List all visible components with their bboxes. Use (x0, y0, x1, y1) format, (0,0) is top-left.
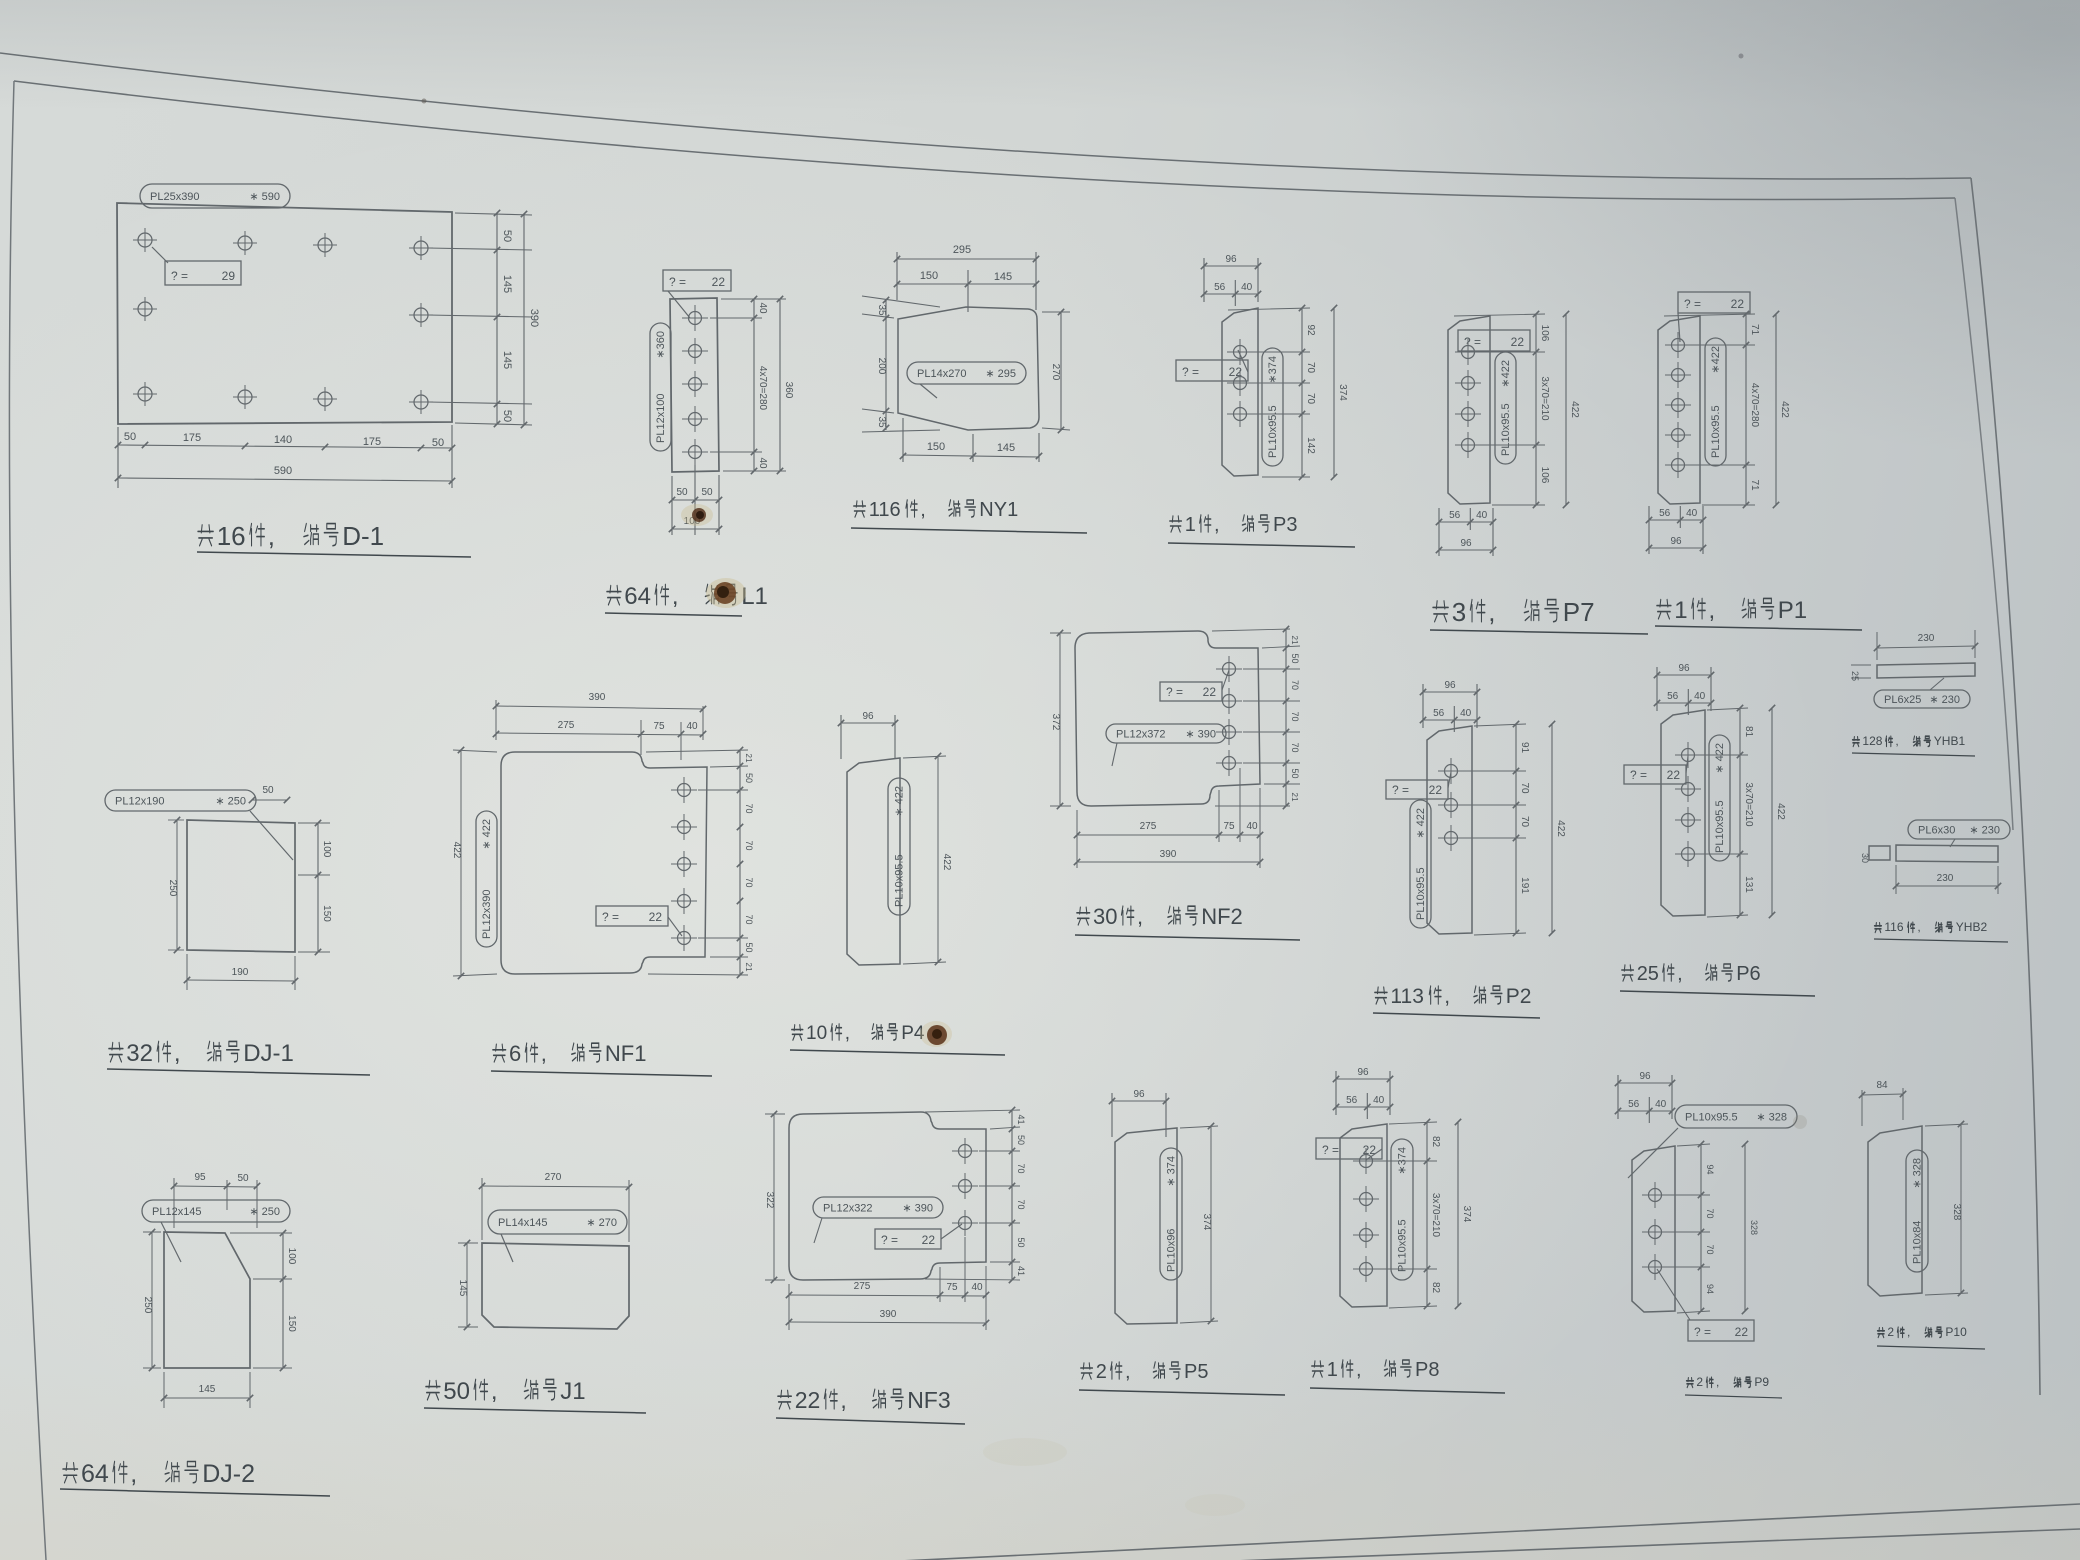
svg-text:∗ 422: ∗ 422 (481, 819, 493, 850)
svg-text:10: 10 (806, 1023, 827, 1044)
svg-text:∗422: ∗422 (1500, 360, 1512, 388)
svg-text:,: , (1907, 1325, 1910, 1339)
svg-text:175: 175 (363, 436, 381, 448)
svg-text:40: 40 (971, 1282, 983, 1293)
svg-text:374: 374 (1201, 1214, 1212, 1231)
svg-text:75: 75 (946, 1282, 958, 1293)
svg-text:16: 16 (217, 521, 246, 551)
svg-text:,: , (1917, 920, 1920, 934)
svg-text:50: 50 (501, 410, 513, 422)
svg-text:131: 131 (1743, 876, 1754, 893)
svg-text:? =: ? = (1630, 768, 1647, 782)
svg-text:50: 50 (744, 942, 754, 952)
svg-text:50: 50 (262, 785, 274, 796)
svg-text:71: 71 (1749, 479, 1760, 491)
svg-text:3: 3 (1452, 597, 1466, 627)
svg-text:P2: P2 (1506, 985, 1532, 1008)
svg-text:92: 92 (1305, 324, 1316, 336)
svg-text:,: , (1214, 514, 1220, 536)
svg-text:70: 70 (1290, 680, 1300, 690)
svg-text:50: 50 (744, 773, 754, 783)
svg-text:NF2: NF2 (1201, 904, 1243, 929)
svg-text:PL14x270: PL14x270 (917, 368, 967, 380)
svg-text:NF1: NF1 (605, 1041, 647, 1066)
svg-text:J1: J1 (560, 1378, 585, 1405)
svg-text:YHB2: YHB2 (1956, 920, 1988, 934)
svg-text:,: , (130, 1460, 137, 1488)
svg-text:? =: ? = (1392, 783, 1409, 797)
svg-text:32: 32 (126, 1040, 153, 1067)
svg-text:,: , (1677, 963, 1683, 985)
svg-text:22: 22 (922, 1233, 936, 1247)
svg-text:? =: ? = (1684, 297, 1701, 311)
svg-text:? =: ? = (1322, 1143, 1339, 1157)
svg-text:190: 190 (232, 967, 249, 978)
svg-text:56: 56 (1449, 510, 1461, 521)
svg-text:∗ 590: ∗ 590 (249, 191, 280, 203)
svg-text:422: 422 (1555, 820, 1566, 837)
svg-text:PL25x390: PL25x390 (150, 191, 200, 203)
svg-text:22: 22 (649, 910, 663, 924)
svg-text:145: 145 (997, 442, 1015, 454)
svg-text:96: 96 (862, 711, 874, 722)
svg-text:P5: P5 (1184, 1361, 1208, 1383)
svg-text:? =: ? = (171, 269, 188, 283)
svg-text:360: 360 (783, 382, 794, 399)
svg-text:? =: ? = (1166, 685, 1183, 699)
svg-text:29: 29 (222, 269, 236, 283)
svg-text:21: 21 (744, 963, 753, 972)
svg-text:50: 50 (1016, 1135, 1026, 1145)
svg-text:,: , (1444, 985, 1450, 1008)
svg-text:50: 50 (501, 230, 513, 242)
svg-text:∗ 230: ∗ 230 (1929, 694, 1960, 706)
svg-text:,: , (174, 1040, 181, 1067)
svg-text:22: 22 (1203, 685, 1217, 699)
svg-text:,: , (1716, 1375, 1719, 1389)
svg-text:75: 75 (653, 721, 665, 732)
svg-text:270: 270 (545, 1172, 562, 1183)
svg-text:40: 40 (686, 721, 698, 732)
svg-text:70: 70 (1290, 742, 1300, 752)
svg-text:3x70=210: 3x70=210 (1743, 782, 1754, 827)
svg-text:2: 2 (1887, 1325, 1894, 1339)
svg-text:? =: ? = (602, 910, 619, 924)
svg-text:22: 22 (712, 275, 726, 289)
svg-text:91: 91 (1519, 742, 1530, 754)
svg-text:145: 145 (501, 275, 513, 293)
svg-text:128: 128 (1862, 734, 1882, 748)
svg-text:∗ 390: ∗ 390 (1185, 728, 1216, 740)
svg-text:56: 56 (1433, 708, 1445, 719)
svg-text:∗ 328: ∗ 328 (1756, 1111, 1787, 1123)
svg-text:PL12x390: PL12x390 (481, 889, 493, 939)
svg-text:94: 94 (1705, 1284, 1715, 1294)
svg-text:70: 70 (1519, 782, 1530, 794)
svg-text:40: 40 (1655, 1099, 1667, 1110)
svg-text:75: 75 (1223, 821, 1235, 832)
svg-text:PL12x145: PL12x145 (152, 1206, 202, 1218)
svg-text:22: 22 (1429, 783, 1443, 797)
svg-text:374: 374 (1337, 384, 1348, 401)
svg-text:? =: ? = (669, 275, 686, 289)
svg-text:∗ 422: ∗ 422 (1415, 808, 1427, 839)
svg-text:70: 70 (1305, 362, 1316, 374)
svg-text:1: 1 (1185, 514, 1196, 536)
svg-text:275: 275 (1140, 821, 1157, 832)
svg-text:82: 82 (1430, 1136, 1441, 1148)
svg-text:200: 200 (876, 358, 887, 375)
svg-text:P10: P10 (1945, 1325, 1967, 1339)
svg-text:∗ 422: ∗ 422 (1714, 743, 1726, 774)
svg-text:∗422: ∗422 (1710, 346, 1722, 374)
svg-text:PL6x30: PL6x30 (1918, 824, 1955, 836)
svg-text:D-1: D-1 (342, 521, 384, 551)
svg-text:140: 140 (274, 434, 292, 446)
svg-text:DJ-2: DJ-2 (202, 1460, 255, 1488)
svg-text:70: 70 (744, 840, 754, 850)
svg-text:3x70=210: 3x70=210 (1539, 376, 1550, 421)
svg-text:116: 116 (1884, 920, 1903, 934)
svg-text:∗ 422: ∗ 422 (894, 786, 906, 817)
svg-text:145: 145 (994, 271, 1012, 283)
svg-text:41: 41 (1016, 1266, 1026, 1276)
svg-text:∗ 250: ∗ 250 (215, 795, 246, 807)
svg-text:56: 56 (1667, 691, 1679, 702)
svg-text:56: 56 (1628, 1099, 1640, 1110)
svg-text:328: 328 (1951, 1204, 1962, 1221)
svg-text:40: 40 (1694, 691, 1706, 702)
svg-text:64: 64 (624, 583, 651, 610)
svg-text:422: 422 (451, 842, 462, 859)
svg-text:40: 40 (757, 457, 768, 469)
svg-text:50: 50 (701, 487, 713, 498)
svg-text:PL6x25: PL6x25 (1884, 694, 1921, 706)
svg-text:390: 390 (1160, 849, 1177, 860)
svg-text:25: 25 (1850, 671, 1860, 681)
svg-text:96: 96 (1444, 680, 1456, 691)
svg-text:,: , (920, 499, 926, 521)
svg-text:NY1: NY1 (979, 499, 1018, 521)
svg-text:40: 40 (1476, 510, 1488, 521)
svg-text:2: 2 (1696, 1375, 1703, 1389)
svg-text:PL10x95.5: PL10x95.5 (1415, 867, 1427, 920)
svg-text:,: , (541, 1041, 547, 1066)
svg-text:106: 106 (1539, 467, 1550, 484)
svg-text:25: 25 (1637, 963, 1659, 985)
svg-text:30: 30 (1093, 904, 1117, 929)
svg-text:96: 96 (1225, 254, 1237, 265)
svg-text:50: 50 (443, 1378, 470, 1405)
svg-text:PL10x95.5: PL10x95.5 (1267, 405, 1279, 458)
svg-text:,: , (1356, 1359, 1362, 1381)
svg-text:PL10x96: PL10x96 (1166, 1229, 1178, 1272)
svg-text:PL10x84: PL10x84 (1912, 1221, 1924, 1264)
svg-text:270: 270 (1050, 364, 1061, 381)
svg-text:21: 21 (1290, 793, 1299, 802)
svg-text:PL12x190: PL12x190 (115, 795, 165, 807)
svg-text:422: 422 (1569, 401, 1580, 418)
svg-text:P3: P3 (1273, 514, 1297, 536)
svg-text:1: 1 (1674, 597, 1687, 624)
svg-text:322: 322 (764, 1192, 775, 1209)
svg-text:150: 150 (286, 1315, 297, 1332)
svg-text:84: 84 (1876, 1080, 1888, 1091)
svg-text:106: 106 (1539, 325, 1550, 342)
svg-text:,: , (1895, 734, 1898, 748)
svg-text:96: 96 (1133, 1089, 1145, 1100)
svg-text:,: , (845, 1023, 850, 1044)
svg-text:422: 422 (1779, 401, 1790, 418)
svg-text:50: 50 (124, 431, 136, 443)
svg-text:21: 21 (1290, 636, 1299, 645)
svg-text:30: 30 (1860, 853, 1870, 863)
svg-text:230: 230 (1937, 873, 1954, 884)
svg-text:250: 250 (167, 880, 178, 897)
svg-text:PL12x372: PL12x372 (1116, 728, 1166, 740)
svg-text:35: 35 (876, 304, 887, 316)
svg-text:70: 70 (744, 877, 754, 887)
svg-text:,: , (1488, 597, 1495, 627)
svg-text:96: 96 (1678, 663, 1690, 674)
svg-text:,: , (672, 583, 679, 610)
svg-text:PL10x95.5: PL10x95.5 (894, 854, 906, 907)
svg-text:4x70=280: 4x70=280 (1749, 383, 1760, 428)
svg-text:150: 150 (321, 905, 332, 922)
svg-text:6: 6 (509, 1041, 521, 1066)
svg-text:PL10x95.5: PL10x95.5 (1714, 800, 1726, 853)
svg-text:,: , (1709, 597, 1716, 624)
svg-text:P8: P8 (1415, 1359, 1439, 1381)
svg-text:175: 175 (183, 432, 201, 444)
svg-text:40: 40 (1241, 282, 1253, 293)
svg-text:∗ 295: ∗ 295 (985, 368, 1016, 380)
svg-text:3x70=210: 3x70=210 (1430, 1193, 1441, 1238)
svg-text:P6: P6 (1736, 963, 1760, 985)
svg-text:70: 70 (1016, 1163, 1026, 1173)
svg-text:95: 95 (194, 1172, 206, 1183)
svg-text:295: 295 (953, 244, 971, 256)
svg-text:PL10x95.5: PL10x95.5 (1685, 1111, 1738, 1123)
svg-text:PL12x100: PL12x100 (655, 393, 667, 443)
svg-text:70: 70 (744, 914, 754, 924)
svg-text:,: , (1125, 1361, 1131, 1383)
svg-text:390: 390 (589, 692, 606, 703)
svg-text:275: 275 (854, 1281, 871, 1292)
svg-text:81: 81 (1743, 726, 1754, 738)
svg-text:422: 422 (941, 854, 952, 871)
svg-text:70: 70 (1016, 1199, 1026, 1209)
svg-text:145: 145 (501, 351, 513, 369)
svg-text:113: 113 (1390, 985, 1423, 1008)
svg-text:40: 40 (1373, 1095, 1385, 1106)
svg-text:145: 145 (457, 1280, 468, 1297)
svg-text:∗ 250: ∗ 250 (249, 1206, 280, 1218)
svg-text:50: 50 (237, 1173, 249, 1184)
svg-text:50: 50 (676, 487, 688, 498)
svg-text:40: 40 (1246, 821, 1258, 832)
svg-text:DJ-1: DJ-1 (243, 1040, 294, 1067)
svg-text:40: 40 (757, 302, 768, 314)
svg-text:PL10x95.5: PL10x95.5 (1710, 405, 1722, 458)
svg-text:94: 94 (1705, 1164, 1715, 1174)
svg-text:? =: ? = (1182, 365, 1199, 379)
svg-text:328: 328 (1749, 1220, 1759, 1235)
svg-text:∗ 374: ∗ 374 (1166, 1156, 1178, 1187)
svg-text:71: 71 (1749, 324, 1760, 336)
svg-text:191: 191 (1519, 877, 1530, 894)
svg-text:PL12x322: PL12x322 (823, 1202, 873, 1214)
svg-text:21: 21 (744, 754, 753, 763)
svg-text:422: 422 (1775, 803, 1786, 820)
svg-text:56: 56 (1346, 1095, 1358, 1106)
svg-text:50: 50 (1016, 1237, 1026, 1247)
svg-text:41: 41 (1016, 1114, 1026, 1124)
svg-text:40: 40 (1686, 508, 1698, 519)
svg-text:1: 1 (1327, 1359, 1338, 1381)
svg-text:96: 96 (1357, 1067, 1369, 1078)
svg-text:70: 70 (1305, 393, 1316, 405)
svg-text:? =: ? = (881, 1233, 898, 1247)
svg-text:P7: P7 (1563, 597, 1595, 627)
svg-text:22: 22 (795, 1387, 821, 1413)
svg-text:P1: P1 (1778, 597, 1807, 624)
svg-text:70: 70 (1519, 816, 1530, 828)
svg-text:50: 50 (1290, 768, 1300, 778)
svg-text:70: 70 (1705, 1244, 1715, 1254)
svg-text:50: 50 (1290, 653, 1300, 663)
svg-text:? =: ? = (1694, 1325, 1711, 1339)
svg-text:390: 390 (880, 1309, 897, 1320)
svg-text:70: 70 (1705, 1208, 1715, 1218)
svg-text:22: 22 (1511, 335, 1525, 349)
svg-text:35: 35 (876, 416, 887, 428)
svg-text:4x70=280: 4x70=280 (757, 366, 768, 411)
svg-text:,: , (1137, 904, 1143, 929)
svg-text:145: 145 (199, 1384, 216, 1395)
svg-text:96: 96 (1639, 1071, 1651, 1082)
svg-text:NF3: NF3 (907, 1387, 950, 1413)
svg-text:∗ 270: ∗ 270 (586, 1217, 617, 1229)
svg-text:2: 2 (1096, 1361, 1107, 1383)
svg-text:50: 50 (432, 437, 444, 449)
svg-text:70: 70 (744, 803, 754, 813)
svg-text:390: 390 (528, 309, 540, 327)
svg-text:∗ 390: ∗ 390 (902, 1202, 933, 1214)
svg-text:PL10x95.5: PL10x95.5 (1500, 403, 1512, 456)
svg-text:22: 22 (1735, 1325, 1749, 1339)
svg-text:∗360: ∗360 (655, 331, 667, 359)
svg-text:∗374: ∗374 (1267, 356, 1279, 384)
svg-text:96: 96 (1670, 536, 1682, 547)
svg-text:100: 100 (286, 1248, 297, 1265)
svg-text:64: 64 (81, 1460, 109, 1488)
svg-text:P9: P9 (1754, 1375, 1769, 1389)
svg-text:56: 56 (1659, 508, 1671, 519)
svg-text:YHB1: YHB1 (1934, 734, 1966, 748)
svg-text:150: 150 (927, 441, 945, 453)
svg-text:,: , (491, 1378, 498, 1405)
svg-text:116: 116 (869, 499, 901, 521)
svg-text:,: , (840, 1387, 846, 1413)
svg-text:70: 70 (1290, 711, 1300, 721)
svg-text:150: 150 (920, 270, 938, 282)
svg-text:374: 374 (1461, 1206, 1472, 1223)
svg-text:PL14x145: PL14x145 (498, 1217, 548, 1229)
svg-text:96: 96 (1460, 538, 1472, 549)
svg-text:142: 142 (1305, 437, 1316, 454)
svg-text:∗ 328: ∗ 328 (1912, 1158, 1924, 1189)
svg-text:82: 82 (1430, 1282, 1441, 1294)
svg-text:22: 22 (1731, 297, 1745, 311)
svg-text:250: 250 (142, 1297, 153, 1314)
svg-text:590: 590 (274, 465, 292, 477)
svg-text:230: 230 (1918, 633, 1935, 644)
svg-text:22: 22 (1667, 768, 1681, 782)
svg-text:PL10x95.5: PL10x95.5 (1397, 1219, 1409, 1272)
svg-text:40: 40 (1460, 708, 1472, 719)
svg-text:275: 275 (558, 720, 575, 731)
svg-text:372: 372 (1050, 714, 1061, 731)
svg-text:∗ 230: ∗ 230 (1969, 824, 2000, 836)
svg-text:56: 56 (1214, 282, 1226, 293)
svg-text:100: 100 (321, 841, 332, 858)
svg-text:,: , (268, 521, 275, 551)
